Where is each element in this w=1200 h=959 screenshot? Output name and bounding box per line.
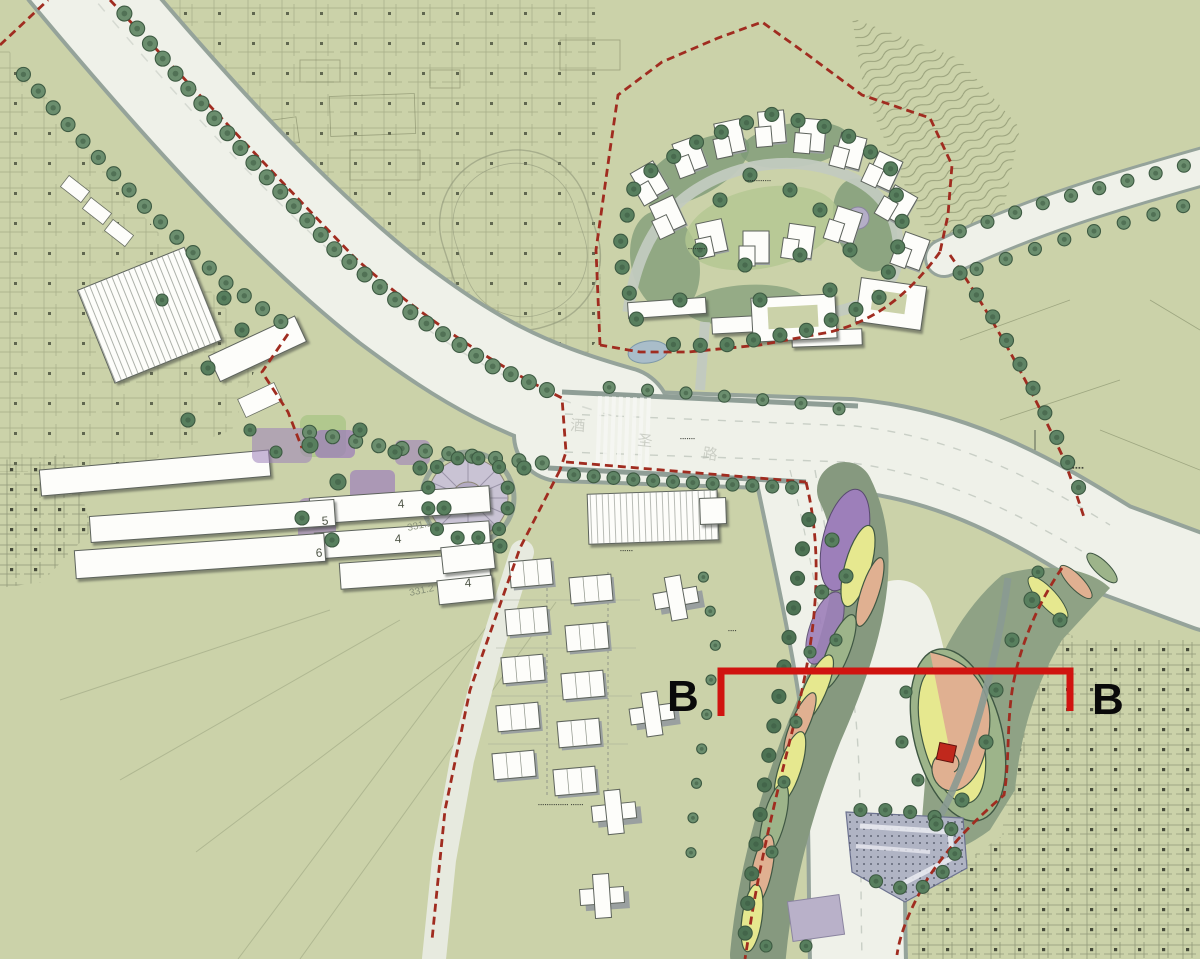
building-number: 6 xyxy=(315,546,323,560)
micro-annotation: ▪▪▪▪▪▪▪▪▪▪▪▪ xyxy=(745,178,771,183)
courtyard-house xyxy=(501,654,548,687)
courtyard-house xyxy=(492,750,539,783)
site-plan-map: 4 5 4 6 4 331.1 331.2 xyxy=(0,0,1200,959)
courtyard-house xyxy=(496,702,543,735)
micro-annotation: ▪▪▪▪ xyxy=(1072,465,1084,472)
road-name-char: 酒 xyxy=(570,417,586,435)
road-name-char: 圣 xyxy=(637,432,654,450)
road-name-char: 路 xyxy=(701,445,718,464)
courtyard-house xyxy=(553,766,600,799)
courtyard-house xyxy=(557,718,604,751)
courtyard-house xyxy=(569,574,616,607)
micro-annotation: ▪▪▪▪ xyxy=(728,628,737,633)
micro-annotation: ▪▪▪▪▪▪▪▪ xyxy=(688,246,706,251)
section-marker-right: B xyxy=(1092,675,1124,724)
building-number: 4 xyxy=(397,497,405,511)
micro-annotation: ▪▪▪▪▪▪▪ xyxy=(680,436,695,441)
park-pavilion xyxy=(936,743,956,763)
building-number: 4 xyxy=(464,576,472,590)
courtyard-house xyxy=(505,606,552,639)
courtyard-house xyxy=(565,622,612,655)
micro-annotation: ▪▪▪▪▪▪ xyxy=(620,548,633,553)
section-marker-left: B xyxy=(667,672,699,721)
building-number: 5 xyxy=(321,514,329,528)
micro-annotation: ▪▪▪▪▪▪▪▪▪▪▪▪▪▪ ▪▪▪▪▪▪ xyxy=(538,802,584,807)
building-number: 4 xyxy=(394,532,402,546)
courtyard-house xyxy=(509,558,556,591)
courtyard-house xyxy=(561,670,608,703)
